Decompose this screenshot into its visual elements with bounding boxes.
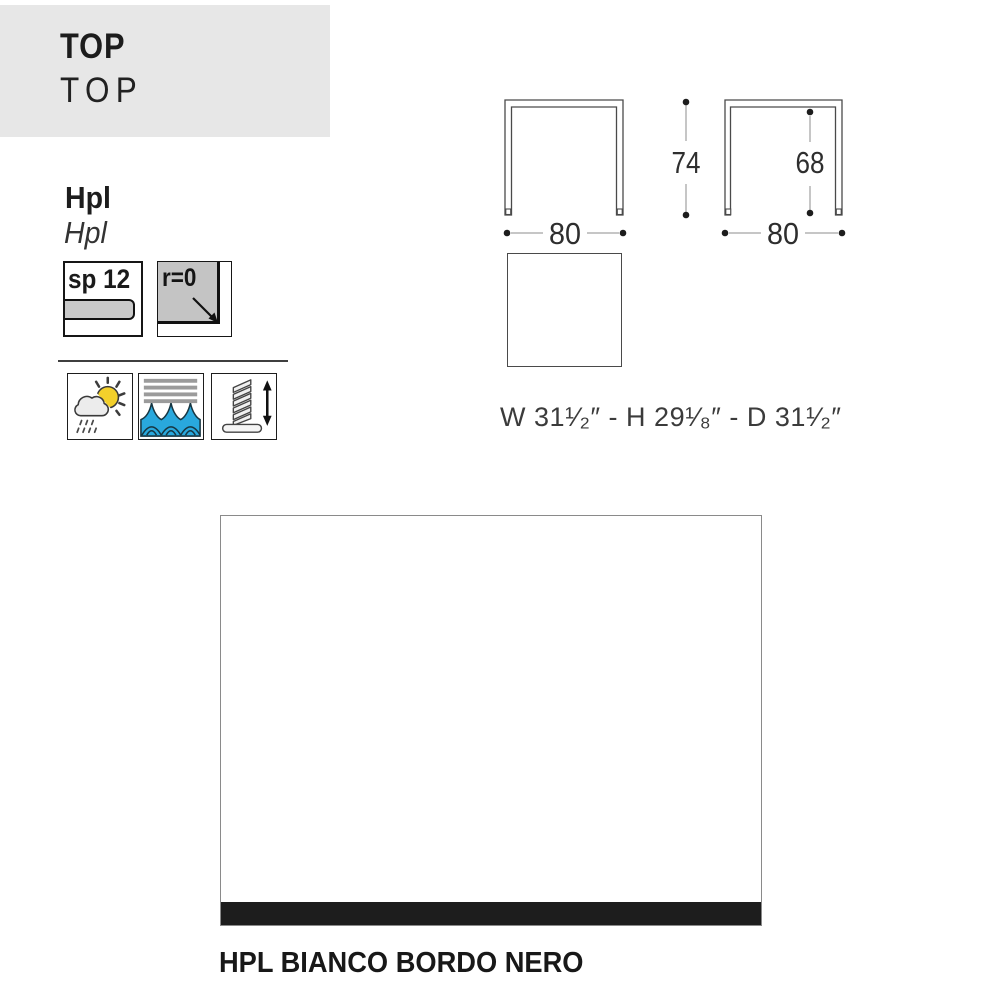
corner-arrow-icon [158, 262, 233, 338]
page-subtitle: TOP [60, 71, 143, 111]
weather-resistant-icon [68, 374, 132, 439]
table-right-foot-r [836, 209, 841, 215]
table-top-view [507, 253, 622, 367]
dim-height-74: 74 [672, 145, 701, 180]
dim-width-80-left: 80 [549, 216, 581, 250]
dim-width-80-right: 80 [767, 216, 799, 250]
table-right-foot-l [726, 209, 731, 215]
imperial-dimensions: W 31¹⁄₂″ - H 29¹⁄₈″ - D 31¹⁄₂″ [500, 402, 841, 433]
finish-swatch [220, 515, 762, 926]
corner-radius-spec-box: r=0 [157, 261, 232, 337]
feature-box-adjustable-feet [211, 373, 277, 440]
panel-thickness-icon [65, 299, 135, 320]
material-name: Hpl [65, 180, 111, 216]
adjustable-feet-icon [212, 374, 276, 439]
feature-box-water [138, 373, 204, 440]
material-name-italic: Hpl [64, 215, 107, 251]
water-resistant-icon [139, 374, 203, 439]
header-band: TOP TOP [0, 5, 330, 137]
dim-height-68: 68 [796, 145, 825, 180]
table-left-foot-l [506, 209, 511, 215]
black-edge-bar [221, 902, 761, 925]
front-view-drawings: 74 68 80 80 [495, 90, 865, 250]
feature-box-weather [67, 373, 133, 440]
finish-caption: HPL BIANCO BORDO NERO [219, 947, 583, 980]
product-spec-sheet: TOP TOP Hpl Hpl sp 12 r=0 [0, 0, 1000, 1000]
table-left-foot-r [617, 209, 622, 215]
thickness-spec-box: sp 12 [63, 261, 143, 337]
table-front-left [505, 100, 623, 215]
thickness-label: sp 12 [68, 264, 130, 295]
divider-line [58, 360, 288, 362]
page-title: TOP [60, 27, 125, 67]
